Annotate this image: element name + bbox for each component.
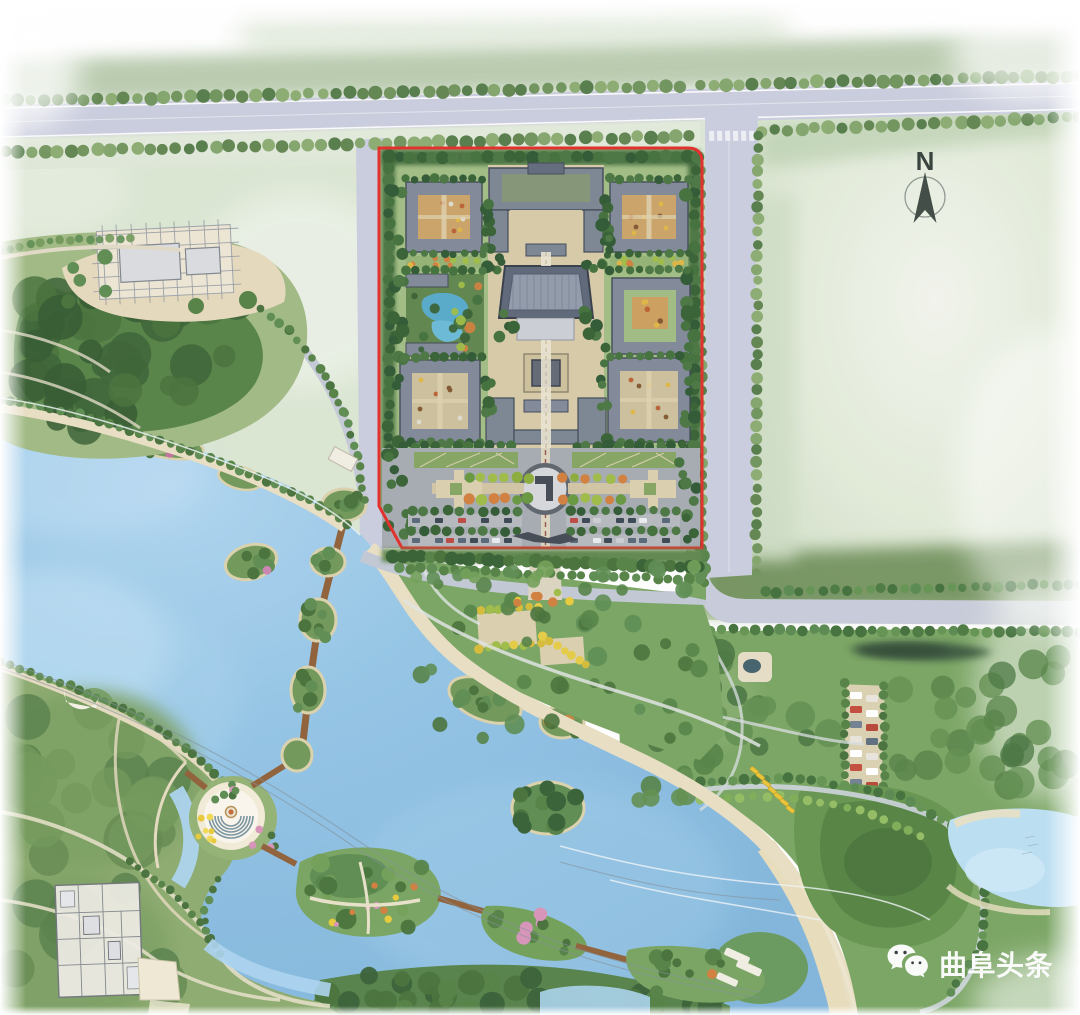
svg-text:曲阜头条: 曲阜头条 bbox=[939, 950, 1053, 981]
